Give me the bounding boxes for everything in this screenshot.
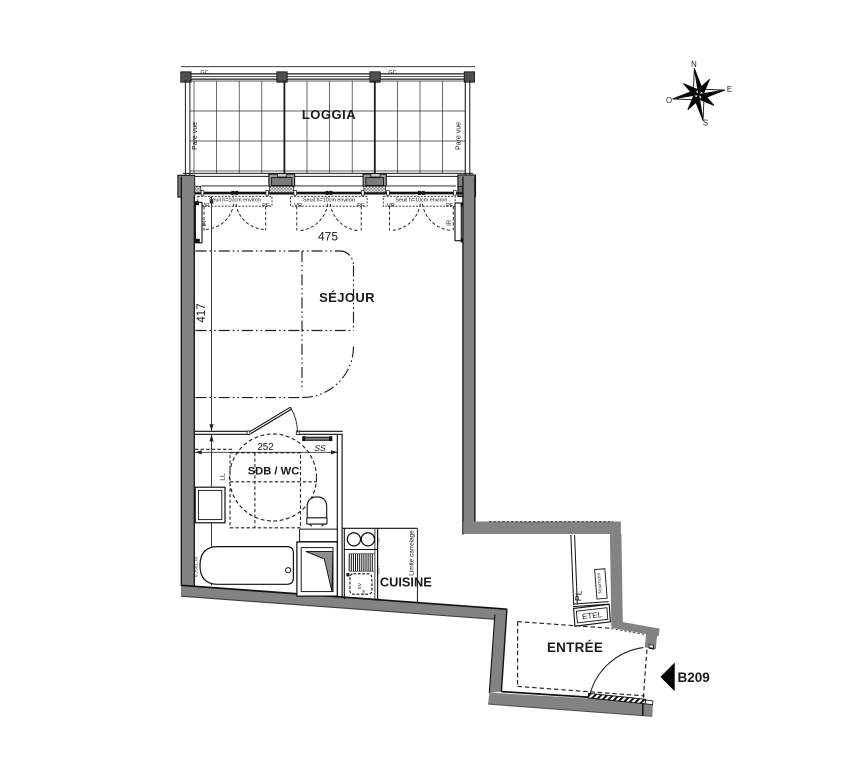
svg-text:CUISINE: CUISINE [380,575,432,590]
svg-text:LL: LL [220,473,227,481]
svg-text:B209: B209 [678,670,710,685]
svg-text:Seuil h=10cm environ: Seuil h=10cm environ [209,198,261,204]
svg-text:IR: IR [202,220,208,227]
svg-text:475: 475 [318,229,338,243]
svg-text:252: 252 [257,442,273,453]
svg-text:Pare vue: Pare vue [456,122,463,150]
svg-text:E: E [727,85,732,94]
svg-text:RGT: RGT [375,565,380,574]
svg-text:SDB / WC: SDB / WC [248,466,300,478]
svg-text:TB: TB [375,538,380,543]
svg-text:PL: PL [573,590,584,602]
svg-text:Limite carrelage: Limite carrelage [409,530,416,576]
svg-text:ENTRÉE: ENTRÉE [547,640,603,655]
svg-text:IR: IR [447,219,453,226]
svg-text:SÉJOUR: SÉJOUR [319,290,375,305]
svg-text:SS: SS [313,443,327,453]
svg-text:Seuil h=10cm environ: Seuil h=10cm environ [303,198,355,204]
svg-text:EV: EV [357,583,362,589]
svg-text:S: S [703,119,708,128]
svg-text:Pare vue: Pare vue [192,122,199,150]
svg-text:0.75x1.70: 0.75x1.70 [193,556,198,577]
svg-text:GC: GC [200,70,208,76]
svg-text:O: O [666,96,672,105]
svg-text:Seuil h=10cm environ: Seuil h=10cm environ [395,198,447,204]
svg-text:N: N [691,60,697,69]
svg-text:VR: VR [294,203,302,209]
svg-text:417: 417 [196,303,208,322]
svg-text:PF: PF [446,203,454,209]
svg-text:VR: VR [387,203,395,209]
svg-text:TB: TB [361,590,366,595]
svg-text:LOGGIA: LOGGIA [302,107,356,122]
svg-text:GC: GC [388,70,396,76]
